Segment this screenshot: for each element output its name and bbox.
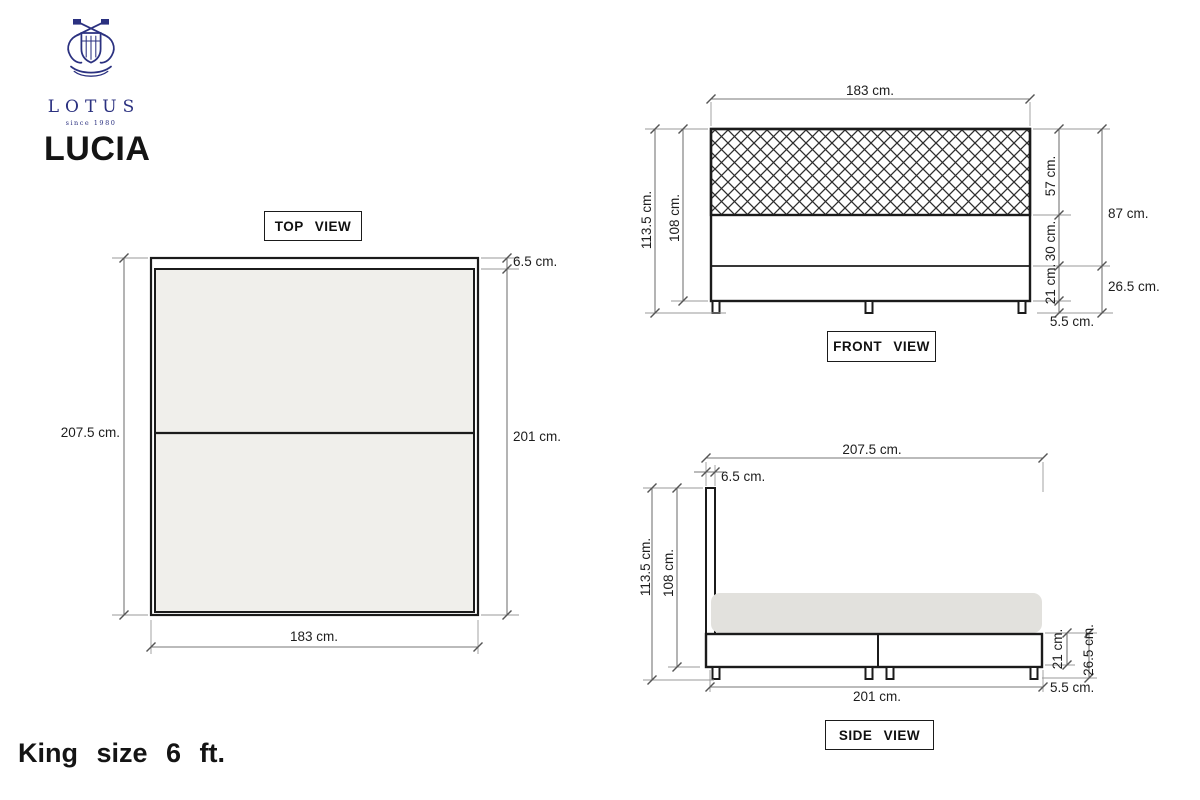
side-view-label: SIDE VIEW xyxy=(825,720,934,750)
front-dim-headboard-height: 57 cm. xyxy=(1043,141,1059,211)
front-legs xyxy=(713,301,1026,313)
top-dim-mattress-length: 201 cm. xyxy=(513,429,561,445)
size-caption: King size 6 ft. xyxy=(18,738,225,769)
front-dim-base-with-legs: 26.5 cm. xyxy=(1108,279,1160,295)
front-dim-lower-base-height: 21 cm. xyxy=(1043,249,1059,319)
side-base xyxy=(706,634,1042,667)
side-view-drawing xyxy=(643,454,1097,693)
technical-drawing xyxy=(0,0,1200,800)
side-dim-base-length: 201 cm. xyxy=(827,689,927,705)
brand-tagline: since 1980 xyxy=(36,119,146,127)
top-dim-total-length: 207.5 cm. xyxy=(40,425,120,441)
side-dim-leg-height: 5.5 cm. xyxy=(1050,680,1094,696)
front-dim-width: 183 cm. xyxy=(820,83,920,99)
front-dim-leg-height: 5.5 cm. xyxy=(1032,314,1112,330)
side-dim-base-height: 21 cm. xyxy=(1050,614,1066,684)
top-view-drawing xyxy=(112,254,519,655)
side-legs xyxy=(713,667,1038,679)
lotus-crest-icon xyxy=(55,16,127,90)
side-dim-headboard-thickness: 6.5 cm. xyxy=(721,469,765,485)
front-view-label: FRONT VIEW xyxy=(827,331,936,362)
front-dim-headboard-plus-upper: 87 cm. xyxy=(1108,206,1149,222)
side-dim-total-height: 113.5 cm. xyxy=(638,532,654,602)
spec-sheet-page: LOTUS since 1980 LUCIA King size 6 ft. T… xyxy=(0,0,1200,800)
side-dim-base-with-legs: 26.5 cm. xyxy=(1081,615,1097,685)
top-dim-headboard-thickness: 6.5 cm. xyxy=(513,254,557,270)
brand-logo: LOTUS since 1980 xyxy=(36,16,146,127)
side-dim-height-no-legs: 108 cm. xyxy=(661,538,677,608)
top-mattress xyxy=(155,269,474,612)
model-name: LUCIA xyxy=(44,130,150,169)
top-view-label: TOP VIEW xyxy=(264,211,362,241)
brand-name: LOTUS xyxy=(36,97,146,117)
side-dim-total-length: 207.5 cm. xyxy=(822,442,922,458)
front-headboard-quilted xyxy=(711,129,1030,215)
front-dim-total-height: 113.5 cm. xyxy=(639,185,655,255)
top-dim-width: 183 cm. xyxy=(264,629,364,645)
front-dim-height-no-legs: 108 cm. xyxy=(667,183,683,253)
side-mattress xyxy=(711,593,1042,633)
